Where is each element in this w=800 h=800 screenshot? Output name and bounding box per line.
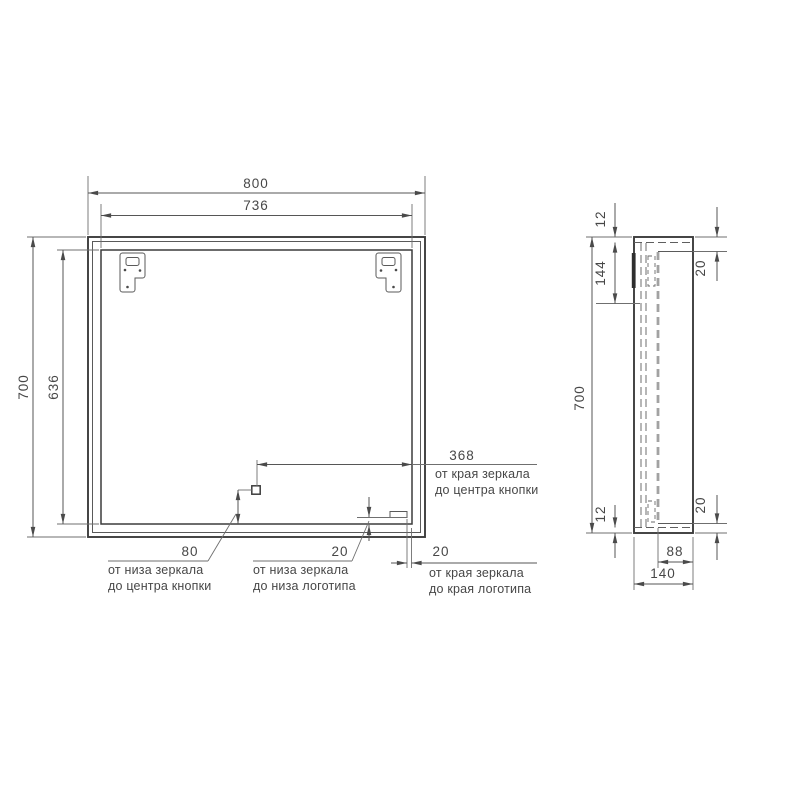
dim-12-bottom: 12 bbox=[593, 505, 608, 522]
mirror-dimension-drawing: 800 736 700 636 368 от края зеркала до ц… bbox=[0, 0, 800, 800]
dim-700-side: 700 bbox=[572, 385, 587, 411]
dim-20-top: 20 bbox=[693, 259, 708, 276]
dim-12-top: 12 bbox=[593, 210, 608, 227]
hidden-bracket-bottom bbox=[648, 501, 655, 522]
mirror-front-view: 800 736 700 636 368 от края зеркала до ц… bbox=[16, 176, 538, 596]
mirror-outer-edge bbox=[88, 237, 425, 537]
dim-636: 636 bbox=[46, 374, 61, 400]
dim-140: 140 bbox=[650, 566, 676, 581]
label-logo-edge-1: от края зеркала bbox=[429, 566, 524, 580]
label-button-edge-1: от края зеркала bbox=[435, 467, 530, 481]
dim-144: 144 bbox=[593, 260, 608, 286]
dim-20-logo-bottom: 20 bbox=[331, 544, 348, 559]
hidden-bracket-top bbox=[648, 256, 655, 286]
mirror-bevel-edge bbox=[93, 242, 421, 533]
logo-mark bbox=[390, 512, 407, 518]
technical-drawing-canvas: 800 736 700 636 368 от края зеркала до ц… bbox=[0, 0, 800, 800]
label-button-edge-2: до центра кнопки bbox=[435, 483, 538, 497]
dim-88: 88 bbox=[666, 544, 683, 559]
dim-80: 80 bbox=[181, 544, 198, 559]
label-logo-edge-2: до края логотипа bbox=[429, 582, 531, 596]
dim-736: 736 bbox=[243, 198, 269, 213]
dim-368: 368 bbox=[449, 448, 475, 463]
bracket-slot bbox=[126, 258, 139, 266]
label-logo-bottom-2: до низа логотипа bbox=[253, 579, 356, 593]
side-outline bbox=[634, 237, 693, 533]
label-button-bottom-1: от низа зеркала bbox=[108, 563, 203, 577]
touch-button bbox=[252, 486, 260, 494]
dim-20-bottom: 20 bbox=[693, 496, 708, 513]
dim-800: 800 bbox=[243, 176, 269, 191]
mirror-inner-edge bbox=[101, 250, 412, 524]
dim-20-logo-edge: 20 bbox=[432, 544, 449, 559]
side-bracket-profile bbox=[632, 253, 636, 288]
label-button-bottom-2: до центра кнопки bbox=[108, 579, 211, 593]
dim-700-front: 700 bbox=[16, 374, 31, 400]
mirror-side-view: 12 144 20 700 12 20 88 140 bbox=[572, 203, 727, 590]
mounting-bracket-right bbox=[376, 253, 401, 292]
label-logo-bottom-1: от низа зеркала bbox=[253, 563, 348, 577]
mounting-bracket-left bbox=[120, 253, 145, 292]
